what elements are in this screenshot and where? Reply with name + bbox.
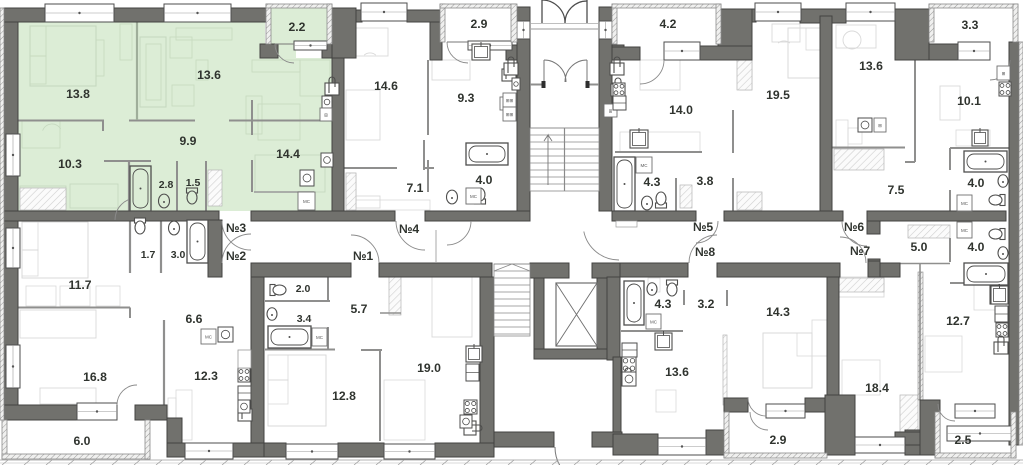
svg-text:14.6: 14.6 <box>374 79 398 93</box>
svg-text:МС: МС <box>641 163 649 168</box>
svg-text:7.1: 7.1 <box>407 181 424 195</box>
svg-text:МС: МС <box>205 334 213 339</box>
svg-text:№7: №7 <box>850 244 871 258</box>
svg-text:3.0: 3.0 <box>171 249 186 261</box>
svg-text:2.2: 2.2 <box>289 20 306 34</box>
svg-text:12.8: 12.8 <box>332 389 356 403</box>
svg-text:МС: МС <box>303 199 311 204</box>
svg-text:4.3: 4.3 <box>655 297 672 311</box>
svg-text:1.7: 1.7 <box>141 249 156 261</box>
svg-text:⊞⊞: ⊞⊞ <box>506 112 514 117</box>
svg-text:2.9: 2.9 <box>471 17 488 31</box>
svg-text:№4: №4 <box>399 222 420 236</box>
svg-text:18.4: 18.4 <box>865 381 889 395</box>
svg-text:13.6: 13.6 <box>859 59 883 73</box>
svg-text:⊞: ⊞ <box>324 112 328 117</box>
svg-text:12.7: 12.7 <box>946 314 970 328</box>
svg-text:12.3: 12.3 <box>194 369 218 383</box>
svg-text:4.0: 4.0 <box>968 176 985 190</box>
svg-text:14.0: 14.0 <box>669 103 693 117</box>
svg-text:5.0: 5.0 <box>911 240 928 254</box>
svg-text:МС: МС <box>961 201 969 206</box>
svg-text:МС: МС <box>961 228 969 233</box>
svg-text:⊞: ⊞ <box>878 123 882 128</box>
svg-text:№5: №5 <box>693 220 714 234</box>
svg-text:2.5: 2.5 <box>955 433 972 447</box>
svg-text:№6: №6 <box>844 220 865 234</box>
svg-text:МС: МС <box>650 319 658 324</box>
svg-text:13.6: 13.6 <box>665 365 689 379</box>
svg-text:11.7: 11.7 <box>68 278 91 292</box>
svg-text:4.0: 4.0 <box>968 240 985 254</box>
svg-text:2.0: 2.0 <box>296 283 311 295</box>
svg-text:19.0: 19.0 <box>417 361 441 375</box>
svg-text:№8: №8 <box>695 245 716 259</box>
svg-text:13.6: 13.6 <box>197 68 221 82</box>
svg-text:13.8: 13.8 <box>66 87 90 101</box>
svg-text:4.2: 4.2 <box>660 17 677 31</box>
svg-text:14.4: 14.4 <box>276 147 300 161</box>
svg-text:МС: МС <box>470 194 478 199</box>
svg-text:№3: №3 <box>226 221 247 235</box>
svg-text:19.5: 19.5 <box>766 88 790 102</box>
svg-text:2.8: 2.8 <box>159 179 174 191</box>
svg-text:3.2: 3.2 <box>698 297 715 311</box>
svg-text:5.7: 5.7 <box>351 302 368 316</box>
svg-text:№1: №1 <box>353 249 374 263</box>
svg-text:10.1: 10.1 <box>957 94 981 108</box>
svg-text:2.9: 2.9 <box>770 433 787 447</box>
svg-text:16.8: 16.8 <box>83 370 107 384</box>
svg-text:9.3: 9.3 <box>458 91 475 105</box>
svg-text:10.3: 10.3 <box>58 157 82 171</box>
svg-text:⊞⊞: ⊞⊞ <box>506 98 514 103</box>
svg-text:9.9: 9.9 <box>180 134 197 148</box>
svg-text:⊞: ⊞ <box>1002 71 1006 76</box>
svg-text:⊞: ⊞ <box>609 108 613 113</box>
svg-text:3.8: 3.8 <box>697 174 714 188</box>
svg-text:6.6: 6.6 <box>186 312 203 326</box>
svg-text:МС: МС <box>316 335 324 340</box>
svg-text:3.4: 3.4 <box>297 313 312 325</box>
svg-text:1.5: 1.5 <box>186 177 201 189</box>
svg-text:6.0: 6.0 <box>74 434 91 448</box>
svg-text:3.3: 3.3 <box>962 18 979 32</box>
svg-text:№2: №2 <box>226 249 247 263</box>
svg-text:4.3: 4.3 <box>644 175 661 189</box>
svg-text:4.0: 4.0 <box>476 173 493 187</box>
svg-text:7.5: 7.5 <box>888 183 905 197</box>
svg-text:14.3: 14.3 <box>766 305 790 319</box>
